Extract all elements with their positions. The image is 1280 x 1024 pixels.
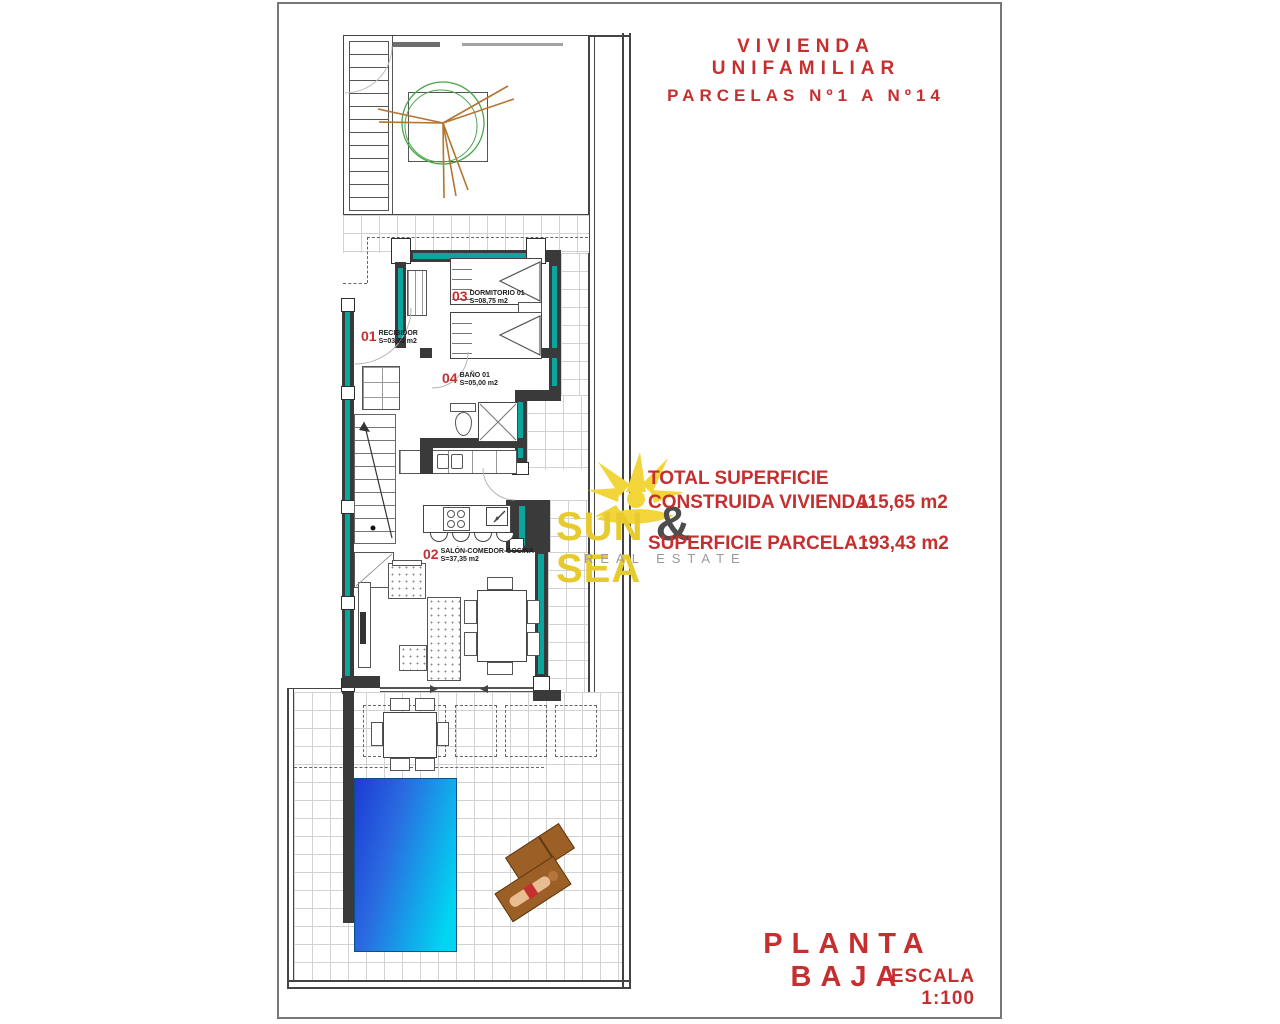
closet-diagonal	[356, 554, 392, 586]
title-line-2: PARCELAS Nº1 A Nº14	[638, 86, 974, 106]
room-label-bano: 04 BAÑO 01 S=05,00 m2	[442, 372, 498, 387]
tree-branches	[378, 86, 514, 198]
plan-scale: ESCALA 1:100	[845, 966, 975, 1010]
logo-word-sun: SUN	[556, 505, 643, 549]
summary-built-area: 115,65 m2	[858, 492, 948, 514]
slider-arrow	[430, 685, 438, 693]
summary-label-2: CONSTRUIDA VIVIENDA:	[648, 492, 875, 514]
room-label-salon: 02 SALÓN-COMEDOR-COCINA S=37,35 m2	[423, 548, 534, 563]
summary-label-1: TOTAL SUPERFICIE	[648, 468, 829, 490]
stairs-arrow-line	[364, 422, 392, 538]
tree-canopy-inner	[405, 90, 477, 162]
room-label-recibidor: 01 RECIBIDOR S=03,80 m2	[361, 330, 418, 345]
title-line-1: VIVIENDA UNIFAMILIAR	[638, 36, 974, 80]
gate-swing-arc	[345, 46, 392, 93]
kitchen-door-arc	[483, 468, 515, 500]
bed-2-pillow	[500, 316, 540, 355]
summary-plot-area: 193,43 m2	[858, 533, 949, 555]
stairs-arrowhead	[359, 422, 370, 432]
drawing-title: VIVIENDA UNIFAMILIAR PARCELAS Nº1 A Nº14	[638, 36, 974, 106]
floorplan-sheet: SUN & SEA REAL ESTATE VIVIENDA UNIFAMILI…	[0, 0, 1280, 1024]
slider-arrow	[480, 685, 488, 693]
stairs-start-dot	[371, 526, 376, 531]
room-label-dormitorio: 03 DORMITORIO 01 S=08,75 m2	[452, 290, 525, 305]
summary-plot-label: SUPERFICIE PARCELA :	[648, 533, 869, 555]
